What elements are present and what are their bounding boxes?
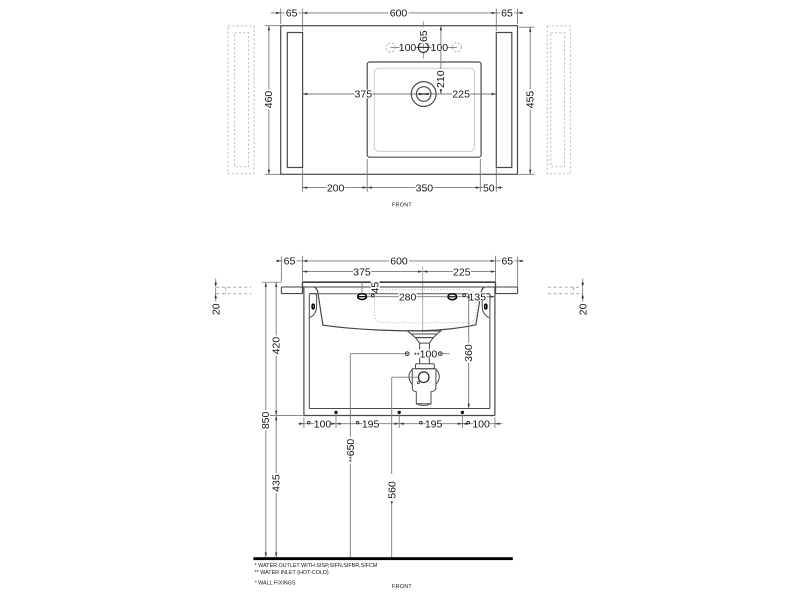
svg-text:* WATER OUTLET WITH SISP,SIFN: * WATER OUTLET WITH SISP,SIFN,SIFBR,SIFC…	[255, 563, 378, 569]
svg-text:** WATER INLET (HOT-COLD): ** WATER INLET (HOT-COLD)	[255, 570, 329, 576]
svg-text:FRONT: FRONT	[392, 202, 412, 208]
svg-text:225: 225	[453, 266, 471, 278]
svg-text:375: 375	[353, 266, 371, 278]
svg-text:**100: **100	[414, 348, 438, 360]
svg-text:20: 20	[578, 303, 590, 315]
svg-text:65: 65	[286, 8, 298, 20]
svg-text:460: 460	[263, 91, 275, 109]
svg-text:° WALL FIXINGS: ° WALL FIXINGS	[255, 580, 296, 586]
svg-text:225: 225	[452, 89, 470, 101]
svg-text:100: 100	[472, 418, 490, 430]
svg-text:135: 135	[469, 291, 487, 303]
svg-text:455: 455	[525, 91, 537, 109]
svg-text:* 560: * 560	[386, 481, 398, 504]
svg-text:200: 200	[327, 182, 345, 194]
svg-text:195: 195	[362, 418, 380, 430]
svg-text:65: 65	[501, 8, 513, 20]
svg-text:600: 600	[390, 256, 408, 268]
svg-text:195: 195	[425, 418, 443, 430]
svg-text:600: 600	[390, 8, 408, 20]
svg-text:100: 100	[399, 42, 417, 54]
svg-text:FRONT: FRONT	[392, 584, 412, 590]
svg-text:20: 20	[211, 303, 223, 315]
svg-text:420: 420	[271, 337, 283, 355]
svg-text:65: 65	[418, 30, 430, 42]
svg-text:65: 65	[501, 256, 513, 268]
svg-text:375: 375	[355, 89, 373, 101]
svg-text:350: 350	[416, 182, 434, 194]
svg-text:100: 100	[314, 418, 332, 430]
svg-text:360: 360	[463, 344, 475, 362]
svg-text:435: 435	[271, 474, 283, 492]
svg-text:50: 50	[483, 182, 495, 194]
svg-text:**650: **650	[345, 439, 357, 463]
svg-text:100: 100	[431, 42, 449, 54]
svg-text:65: 65	[284, 256, 296, 268]
svg-text:850: 850	[260, 411, 272, 429]
svg-text:280: 280	[399, 291, 417, 303]
svg-text:210: 210	[435, 70, 447, 88]
svg-text:45: 45	[369, 282, 381, 294]
